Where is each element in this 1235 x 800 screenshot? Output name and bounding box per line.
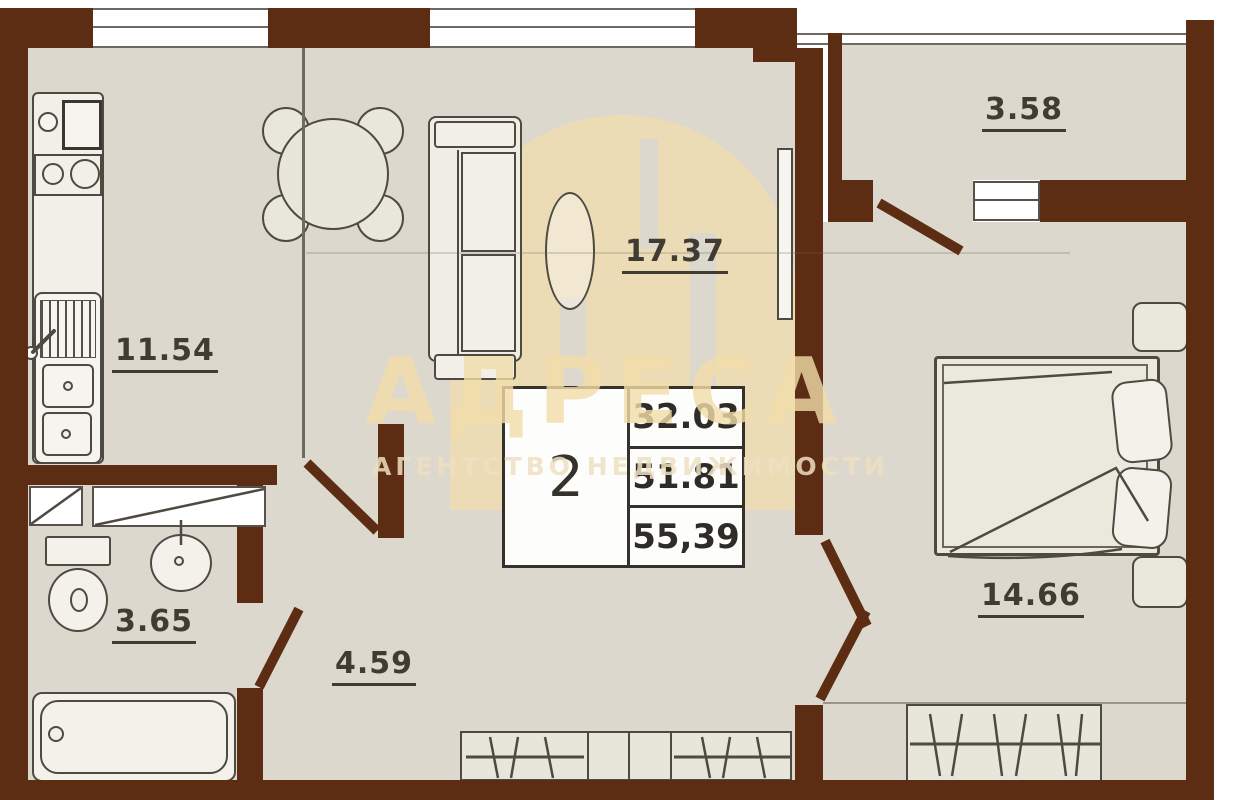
nightstand — [1132, 302, 1188, 352]
sink-drain — [61, 429, 71, 439]
area-label-bathroom: 3.65 — [112, 604, 196, 644]
wall-top-pier-ext — [753, 46, 797, 62]
wardrobe-divider — [670, 731, 672, 781]
vent-shaft — [29, 486, 83, 526]
bedroom-wardrobe — [906, 704, 1102, 782]
sofa-cushion — [461, 152, 516, 252]
vent-shaft — [92, 486, 266, 527]
living-area-value: 32.03 — [630, 389, 742, 449]
kitchen-counter-knob — [38, 112, 58, 132]
wardrobe-divider — [628, 731, 630, 781]
stove-burner — [70, 159, 100, 189]
wall-top-pier — [268, 8, 430, 48]
drainboard — [40, 300, 96, 358]
wall-top-pier — [695, 8, 797, 48]
wall-balcony-left — [828, 33, 842, 180]
rooms-count: 2 — [505, 389, 630, 565]
wall-kitchen-bathroom — [0, 465, 277, 485]
area-label-kitchen: 11.54 — [112, 333, 218, 373]
apartment-area-value: 51.81 — [630, 449, 742, 509]
wall-kitchen-living-partition — [302, 48, 305, 458]
wall-right — [1186, 20, 1214, 780]
bathtub-inner — [40, 700, 228, 774]
pillow — [1111, 466, 1174, 551]
wall-balcony-bedroom-pier — [828, 180, 873, 222]
wall-balcony-bedroom — [1040, 180, 1186, 222]
toilet-hole — [70, 588, 88, 612]
living-room-window — [430, 8, 695, 48]
window-mullion — [430, 26, 695, 28]
sofa-backrest-line — [457, 150, 459, 354]
area-label-balcony: 3.58 — [982, 92, 1066, 132]
wall-living-bedroom-stub — [795, 705, 823, 780]
balcony-window — [973, 181, 1040, 221]
sink-drain — [63, 381, 73, 391]
pillow — [1110, 377, 1174, 464]
total-area-value: 55,39 — [630, 508, 742, 565]
washbasin-drain — [174, 556, 184, 566]
floor-plan: 11.54 17.37 3.58 14.66 3.65 4.59 2 32.03… — [0, 0, 1235, 800]
sofa-armrest — [434, 121, 516, 148]
bathtub-drain — [48, 726, 64, 742]
window-mullion — [975, 199, 1038, 201]
radiator — [777, 148, 793, 320]
area-label-living: 17.37 — [622, 234, 728, 274]
watermark-logo-slot — [640, 139, 658, 249]
hallway-wardrobe — [460, 731, 792, 781]
stove-burner — [42, 163, 64, 185]
summary-table: 2 32.03 51.81 55,39 — [502, 386, 745, 568]
wall-bottom — [0, 780, 1214, 800]
area-label-hallway: 4.59 — [332, 646, 416, 686]
wall-left — [0, 8, 28, 800]
wall-kitchen-doorway-stub — [378, 424, 404, 538]
window-mullion — [93, 26, 268, 28]
area-label-bedroom: 14.66 — [978, 578, 1084, 618]
toilet-tank — [45, 536, 111, 566]
sofa-armrest — [434, 354, 516, 380]
nightstand — [1132, 556, 1188, 608]
wall-bathroom-right-stub — [237, 688, 263, 780]
floor-balcony-doorway — [873, 180, 973, 222]
balcony-parapet — [797, 33, 1186, 45]
wardrobe-divider — [587, 731, 589, 781]
kitchen-window — [93, 8, 268, 48]
dining-table — [277, 118, 389, 230]
kitchen-appliance — [62, 100, 102, 150]
coffee-table — [545, 192, 595, 310]
wall-living-bedroom — [795, 48, 823, 535]
sofa-cushion — [461, 254, 516, 352]
summary-areas: 32.03 51.81 55,39 — [630, 389, 742, 565]
wall-top-pier — [28, 8, 93, 48]
